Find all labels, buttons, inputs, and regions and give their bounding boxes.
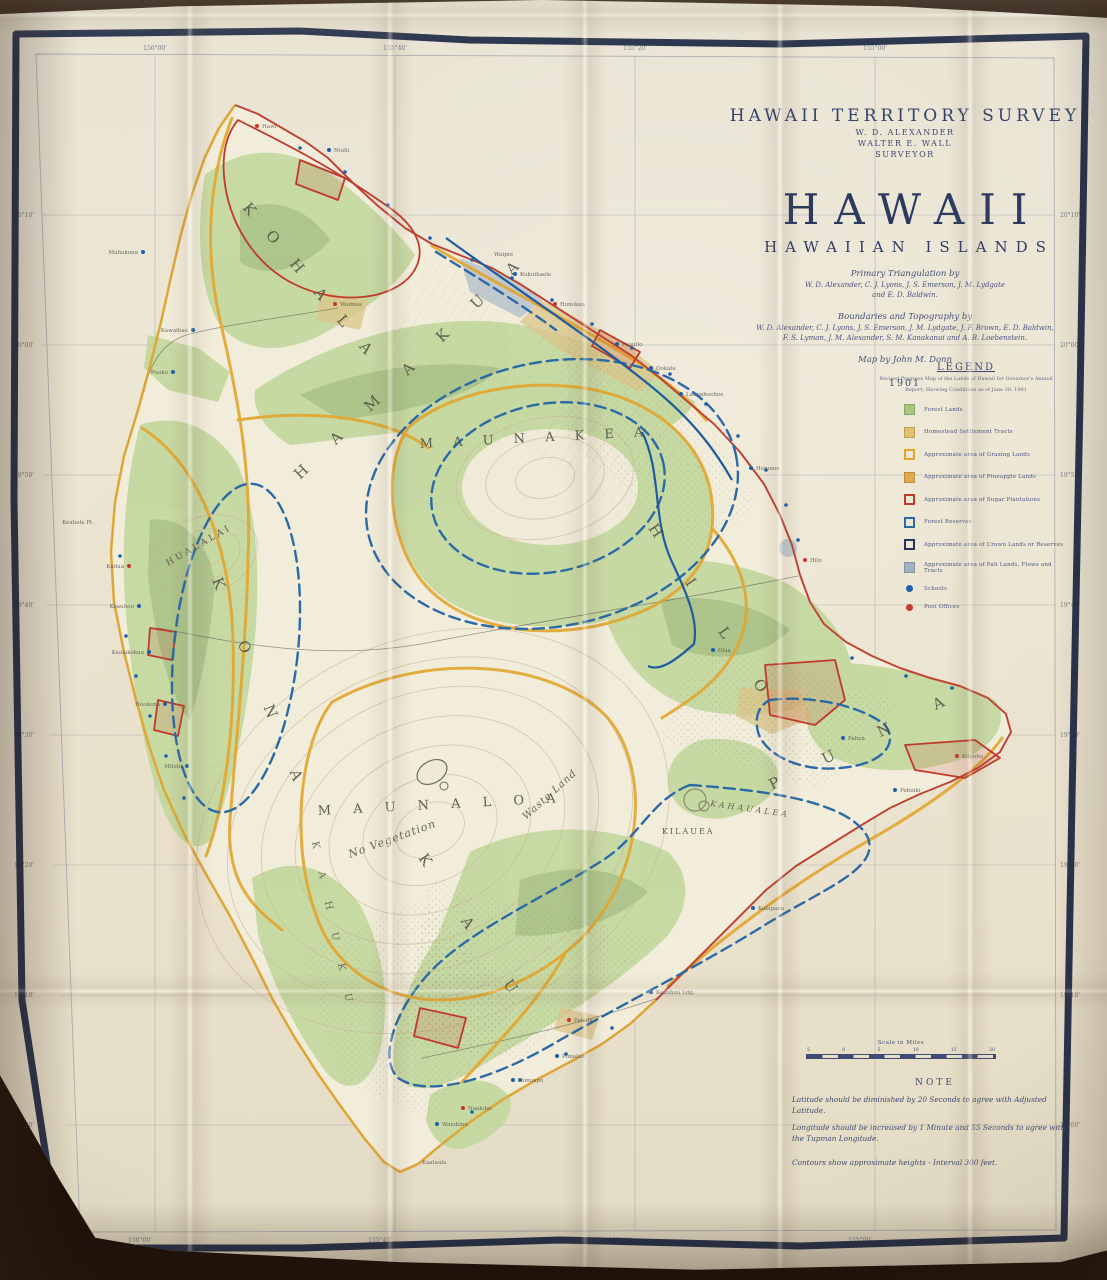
school-dot [784, 503, 788, 507]
school-dot [470, 258, 474, 262]
post-office-dot [127, 564, 131, 568]
school-dot [550, 298, 554, 302]
place-name-label: Honomu [756, 466, 780, 472]
school-dot [134, 674, 138, 678]
legend-swatch-fill [904, 472, 915, 483]
place-name-label: Waiohinu [442, 1122, 468, 1128]
legend-item: Approximate area of Pali Lands, Flows an… [904, 562, 1064, 574]
scale-tick-numbers: 505101520 [806, 1048, 996, 1053]
legend-item: Forest Reserves [904, 517, 1064, 528]
school-dot [555, 1054, 559, 1058]
map-subtitle: HAWAIIAN ISLANDS [705, 238, 1105, 256]
place-name-label: Punaluu [562, 1054, 585, 1060]
legend-item: Schools [904, 585, 1064, 592]
legend-item: Approximate area of Grazing Lands [904, 449, 1064, 460]
place-name-label: Kapoho [962, 754, 984, 760]
legend-label: Forest Reserves [924, 519, 972, 525]
note-block: NOTE Latitude should be diminished by 20… [792, 1078, 1078, 1167]
school-dot [751, 906, 755, 910]
place-name-label: Honuapo [518, 1078, 544, 1084]
legend-label: Approximate area of Pineapple Lands [924, 474, 1036, 480]
legend-item: Approximate area of Crown Lands or Reser… [904, 539, 1064, 550]
school-dot [615, 342, 619, 346]
school-dot [610, 1026, 614, 1030]
school-dot [343, 170, 347, 174]
school-dot [749, 466, 753, 470]
school-dot [182, 796, 186, 800]
longitude-label: 155°00' [863, 45, 887, 52]
place-name-label: Hawi [262, 124, 277, 130]
legend-swatch-outline [904, 449, 915, 460]
legend-swatch-outline [904, 494, 915, 505]
school-dot [137, 604, 141, 608]
note-longitude-line: Longitude should be increased by 1 Minut… [792, 1123, 1078, 1144]
latitude-label: 19°00' [14, 1122, 34, 1129]
place-name-label: Kaalualu [422, 1160, 447, 1166]
school-dot [893, 788, 897, 792]
legend-label: Post Offices [924, 604, 959, 610]
legend-item: Approximate area of Sugar Plantations [904, 494, 1064, 505]
scale-tick: 10 [913, 1048, 919, 1053]
school-dot [679, 392, 683, 396]
post-office-dot [567, 1018, 571, 1022]
post-office-dot [553, 302, 557, 306]
legend-label: Schools [924, 586, 947, 592]
school-dot [171, 370, 175, 374]
title-block: HAWAII TERRITORY SURVEY W. D. ALEXANDER … [705, 106, 1105, 389]
place-name-label: Hookena [135, 702, 161, 708]
scale-bar-block: Scale in Miles 505101520 [806, 1040, 996, 1059]
school-dot [428, 236, 432, 240]
legend-items: Forest LandsHomestead Settlement TractsA… [904, 404, 1064, 611]
legend-item: Post Offices [904, 604, 1064, 611]
post-office-dot [803, 558, 807, 562]
credit-heading-1: Primary Triangulation by [705, 269, 1105, 279]
photograph-of-map: 156°00'156°00'155°40'155°40'155°20'155°2… [0, 0, 1107, 1280]
map-sheet-paper: 156°00'156°00'155°40'155°40'155°20'155°2… [0, 0, 1107, 1280]
place-name-label: Milolii [164, 764, 182, 770]
place-name-label: Keauhou Ldg. [656, 990, 695, 996]
place-name-label: Niulii [334, 148, 350, 154]
credit-names-2b: F. S. Lyman, J. M. Alexander, S. M. Kana… [705, 334, 1105, 342]
school-dot [513, 272, 517, 276]
school-dot [711, 648, 715, 652]
place-name-label: Kukuihaele [520, 272, 551, 278]
scale-tick: 20 [989, 1048, 995, 1053]
post-office-dot [955, 754, 959, 758]
legend-note-line-1: Revised Progress Map of the Lands of Haw… [868, 376, 1064, 384]
longitude-label: 156°00' [143, 45, 167, 52]
legend-item: Forest Lands [904, 404, 1064, 415]
place-name-label: Kalapana [758, 906, 785, 912]
legend-swatch-fill [904, 427, 915, 438]
legend-label: Homestead Settlement Tracts [924, 429, 1013, 435]
mountain-label: KILAUEA [662, 827, 715, 836]
legend-item: Approximate area of Pineapple Lands [904, 472, 1064, 483]
printer-imprint: Photo Lith. [66, 1251, 99, 1257]
school-dot [148, 714, 152, 718]
school-dot [124, 634, 128, 638]
note-contour-line: Contours show approximate heights - Inte… [792, 1158, 1078, 1167]
legend-label: Approximate area of Grazing Lands [924, 452, 1030, 458]
legend-swatch-dot [906, 585, 913, 592]
legend-label: Approximate area of Sugar Plantations [924, 497, 1040, 503]
note-latitude-line: Latitude should be diminished by 20 Seco… [792, 1095, 1078, 1116]
surveyor-role: SURVEYOR [705, 150, 1105, 159]
scale-label: Scale in Miles [806, 1040, 996, 1046]
legend-label: Approximate area of Pali Lands, Flows an… [924, 562, 1064, 574]
place-name-label: Laupahoehoe [686, 392, 724, 398]
school-dot [736, 434, 740, 438]
post-office-dot [461, 1106, 465, 1110]
post-office-dot [333, 302, 337, 306]
place-name-label: Keahole Pt. [62, 520, 94, 526]
place-name-label: Mahukona [109, 250, 139, 256]
longitude-label: 156°00' [128, 1237, 152, 1244]
school-dot [163, 702, 167, 706]
school-dot [386, 203, 390, 207]
place-name-label: Ookala [656, 366, 676, 372]
school-dot [668, 372, 672, 376]
legend-label: Forest Lands [924, 407, 963, 413]
legend-label: Approximate area of Crown Lands or Reser… [924, 542, 1063, 548]
school-dot [185, 764, 189, 768]
scale-bar [806, 1054, 996, 1059]
legend-note-line-2: Report, Showing Conditions as of June 30… [868, 387, 1064, 395]
school-dot [511, 1078, 515, 1082]
school-dot [141, 250, 145, 254]
school-dot [147, 650, 151, 654]
place-name-label: Hilo [810, 558, 822, 564]
place-name-label: Pahoa [848, 736, 866, 742]
note-heading: NOTE [792, 1078, 1078, 1088]
school-dot [298, 146, 302, 150]
place-name-label: Kealakekua [112, 650, 145, 656]
place-name-label: Keauhou [110, 604, 135, 610]
legend-item: Homestead Settlement Tracts [904, 427, 1064, 438]
survey-title: HAWAII TERRITORY SURVEY [705, 106, 1105, 126]
school-dot [796, 538, 800, 542]
place-name-label: Olaa [718, 648, 732, 654]
school-dot [904, 674, 908, 678]
scale-tick: 15 [951, 1048, 957, 1053]
place-name-label: Pahala [574, 1018, 593, 1024]
legend-swatch-fill [904, 562, 915, 573]
place-name-label: Honokaa [560, 302, 586, 308]
legend-swatch-dot [906, 604, 913, 611]
legend-swatch-fill [904, 404, 915, 415]
school-dot [590, 322, 594, 326]
scale-tick: 5 [878, 1048, 881, 1053]
place-name-label: Kailua [106, 564, 124, 570]
place-name-label: Waipio [494, 252, 513, 258]
place-name-label: Puako [151, 370, 169, 376]
legend-heading: LEGEND [868, 362, 1064, 373]
place-name-label: Pohoiki [900, 788, 921, 794]
school-dot [118, 554, 122, 558]
scale-tick: 0 [842, 1048, 845, 1053]
school-dot [327, 148, 331, 152]
scale-tick: 5 [807, 1048, 810, 1053]
school-dot [435, 1122, 439, 1126]
credit-names-2a: W. D. Alexander, C. J. Lyons, J. S. Emer… [705, 324, 1105, 332]
school-dot [850, 656, 854, 660]
school-dot [164, 754, 168, 758]
legend: LEGEND Revised Progress Map of the Lands… [868, 362, 1064, 622]
place-name-label: Waimea [340, 302, 363, 308]
post-office-dot [255, 124, 259, 128]
longitude-label: 155°20' [623, 45, 647, 52]
credit-names-1b: and E. D. Baldwin. [705, 291, 1105, 299]
school-dot [841, 736, 845, 740]
credit-heading-2: Boundaries and Topography by [705, 312, 1105, 322]
legend-swatch-outline [904, 539, 915, 550]
place-name-label: Naalehu [468, 1106, 492, 1112]
surveyor-name-1: W. D. ALEXANDER [705, 128, 1105, 137]
place-name-label: Kawaihae [161, 328, 188, 334]
legend-swatch-outline [904, 517, 915, 528]
school-dot [191, 328, 195, 332]
longitude-label: 155°40' [383, 45, 407, 52]
credit-names-1a: W. D. Alexander, C. J. Lyons, J. S. Emer… [705, 281, 1105, 289]
school-dot [649, 990, 653, 994]
school-dot [649, 366, 653, 370]
surveyor-name-2: WALTER E. WALL [705, 139, 1105, 148]
school-dot [704, 402, 708, 406]
place-name-label: Paauilo [622, 342, 643, 348]
map-main-title: HAWAII [705, 185, 1105, 234]
